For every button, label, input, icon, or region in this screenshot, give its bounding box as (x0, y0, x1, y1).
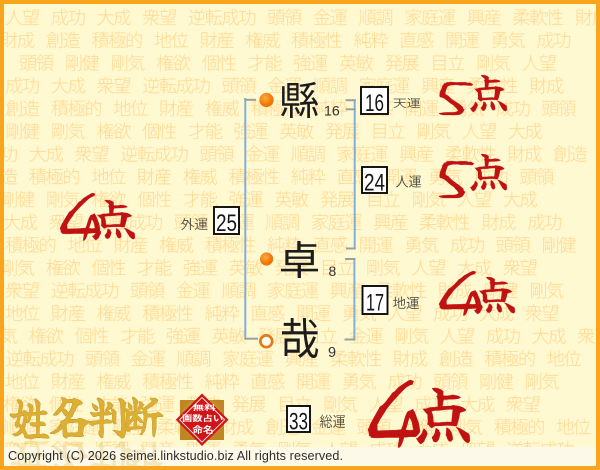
svg-text:8: 8 (329, 263, 337, 279)
svg-text:25: 25 (216, 210, 237, 237)
svg-text:9: 9 (328, 345, 336, 361)
svg-text:16: 16 (324, 104, 340, 120)
svg-text:17: 17 (366, 289, 384, 316)
svg-text:Copyright (C) 2026 seimei.link: Copyright (C) 2026 seimei.linkstudio.biz… (8, 449, 343, 463)
svg-text:24: 24 (364, 169, 385, 196)
svg-text:33: 33 (289, 408, 308, 435)
svg-text:16: 16 (365, 90, 384, 117)
